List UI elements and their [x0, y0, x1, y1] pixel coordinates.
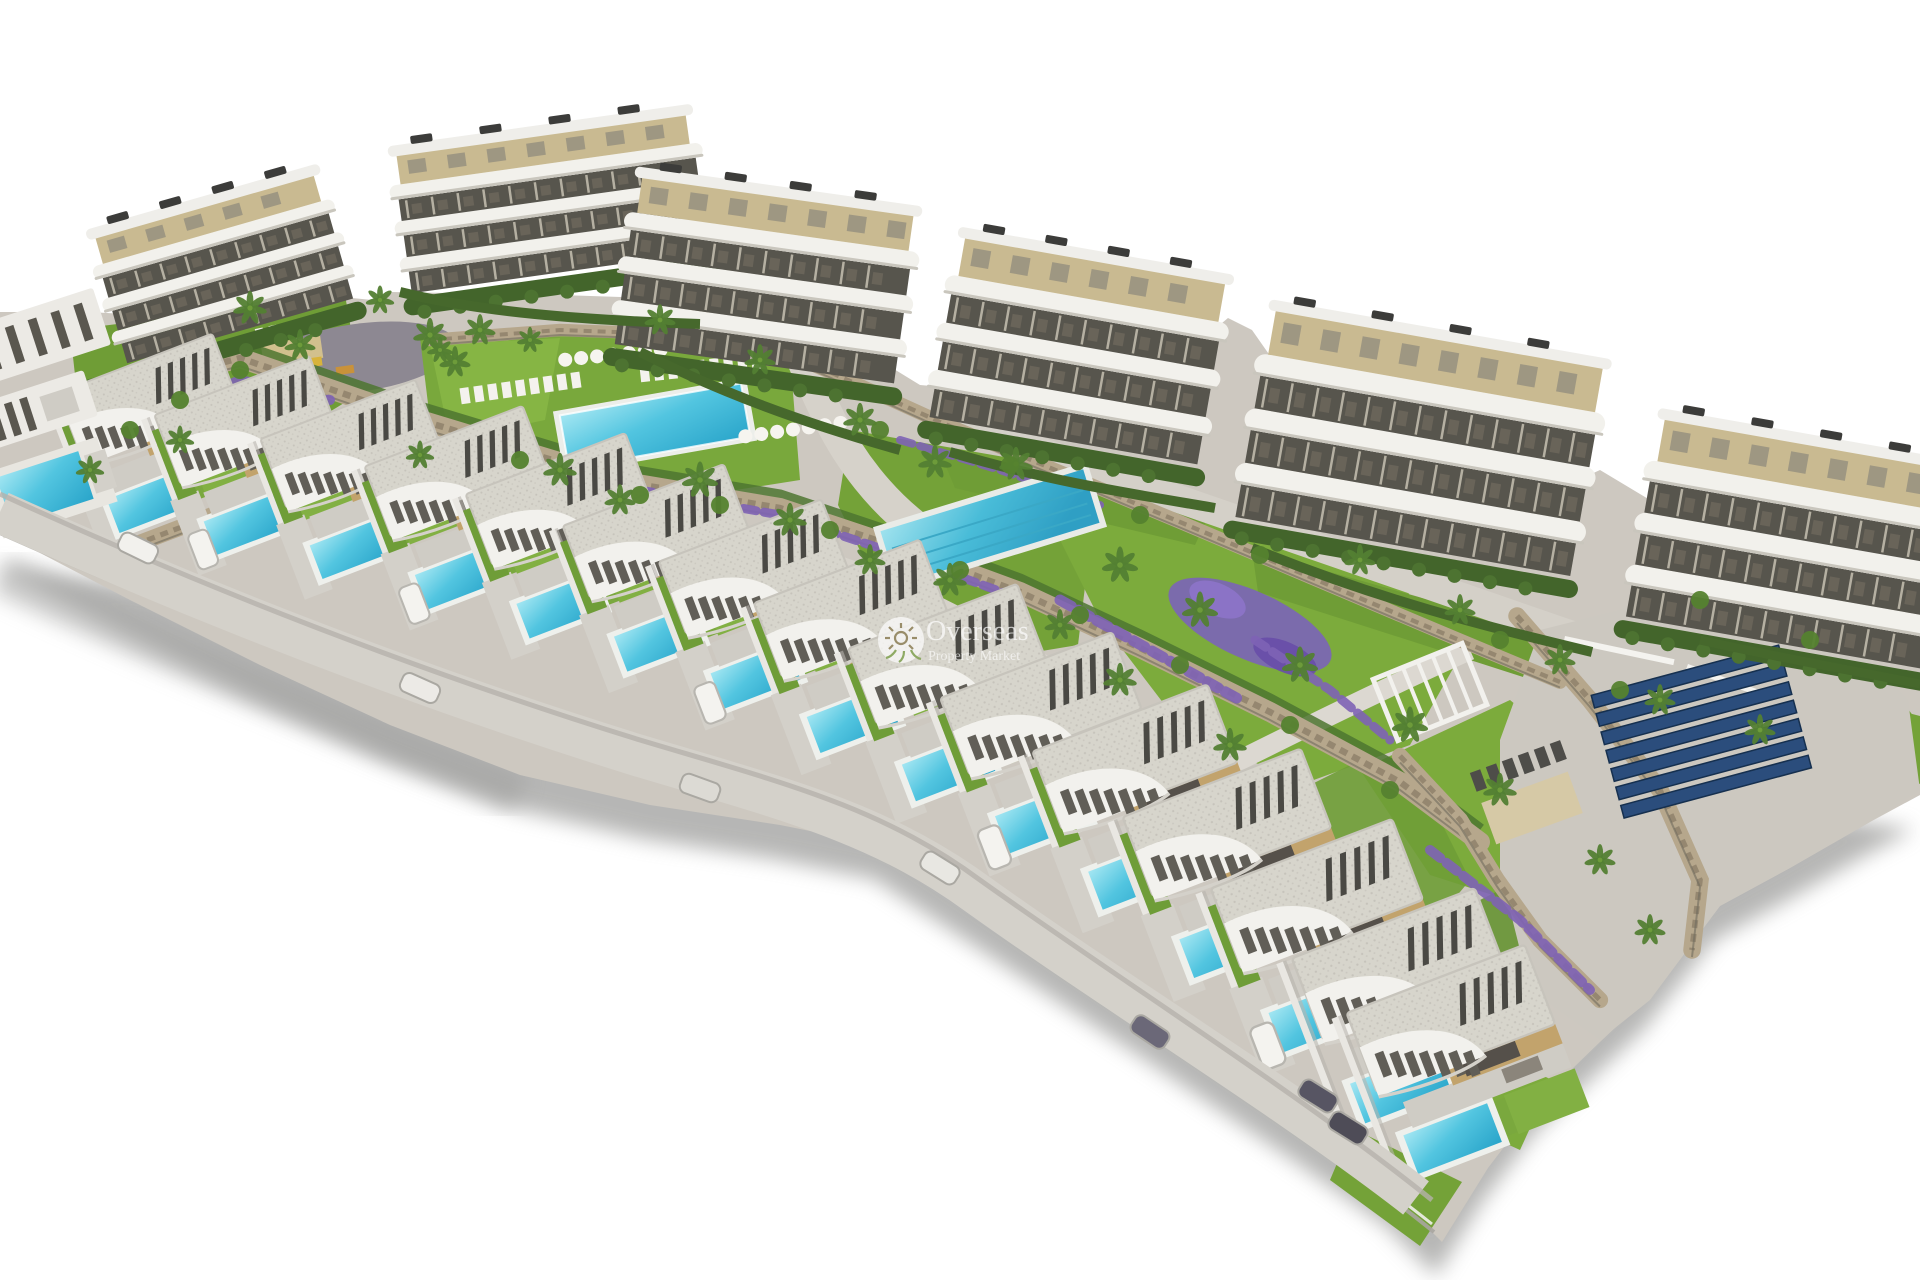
svg-text:Overseas: Overseas — [926, 616, 1029, 647]
svg-text:Property Market: Property Market — [928, 649, 1020, 664]
